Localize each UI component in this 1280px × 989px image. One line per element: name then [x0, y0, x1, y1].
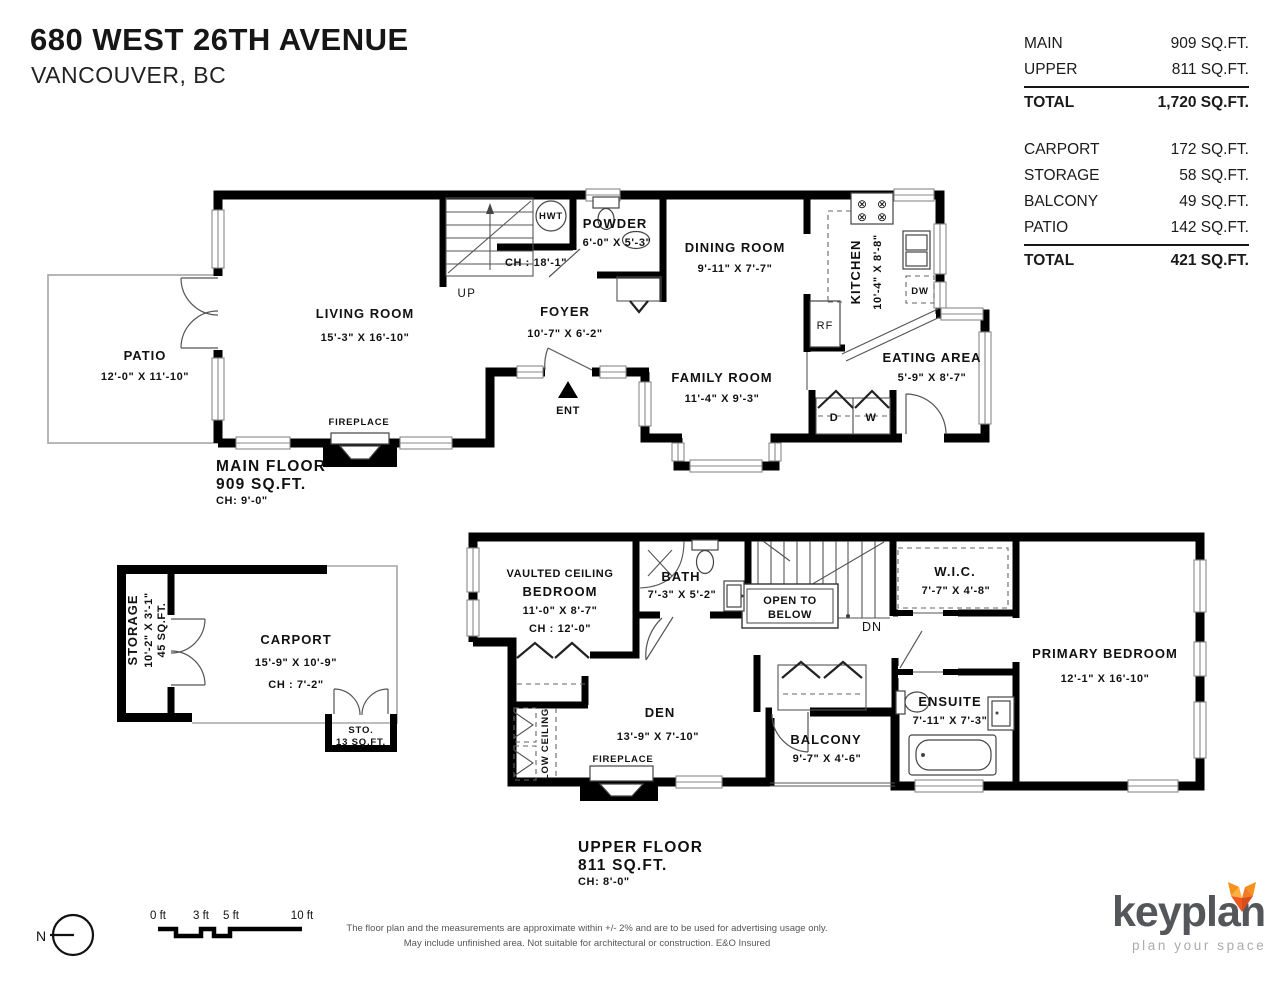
main-floor-plan: HWT ⊗ ⊗ ⊗ ⊗	[48, 189, 991, 507]
wic-pocket-door	[898, 607, 958, 619]
family-dims: 11'-4" X 9'-3"	[685, 393, 760, 405]
den-name: DEN	[645, 705, 675, 720]
main-floor-title: MAIN FLOOR	[216, 458, 326, 475]
disclaimer: The floor plan and the measurements are …	[337, 921, 837, 951]
bath-door	[646, 617, 673, 660]
primary-dims: 12'-1" X 16'-10"	[1061, 673, 1150, 685]
primary-name: PRIMARY BEDROOM	[1032, 646, 1178, 661]
dining-dims: 9'-11" X 7'-7"	[698, 263, 773, 275]
ensuite-tub	[909, 735, 996, 775]
eating-dims: 5'-9" X 8'-7"	[898, 372, 967, 384]
dw-label: DW	[911, 286, 928, 297]
open-to-below: OPEN TO BELOW	[742, 584, 838, 628]
family-name: FAMILY ROOM	[671, 370, 772, 385]
living-name: LIVING ROOM	[316, 306, 414, 321]
eating-area-door	[906, 394, 946, 434]
hall-door	[900, 631, 922, 668]
fox-icon	[1227, 882, 1257, 914]
rf-label: RF	[817, 320, 834, 332]
floorplan-page: 680 WEST 26TH AVENUE VANCOUVER, BC MAIN …	[0, 0, 1280, 989]
kitchen-dishwasher: DW	[906, 276, 934, 303]
low-ceiling-area: LOW CEILING	[514, 708, 556, 780]
stair-ch-label: CH : 18'-1"	[505, 257, 567, 269]
bedroom-name-line1: VAULTED CEILING	[507, 568, 614, 580]
kitchen-name: KITCHEN	[848, 240, 863, 305]
main-fireplace	[323, 433, 397, 467]
floor-plan-canvas: HWT ⊗ ⊗ ⊗ ⊗	[0, 0, 1280, 989]
ensuite-pocket-door	[898, 666, 958, 678]
main-floor-ceiling: CH: 9'-0"	[216, 495, 268, 507]
low-ceiling-label: LOW CEILING	[540, 708, 551, 780]
primary-door-opening	[1010, 620, 1022, 660]
sto-area: 13 SQ.FT.	[336, 737, 386, 748]
carport-name: CARPORT	[260, 632, 331, 647]
bath-vanity	[724, 581, 744, 611]
ensuite-dims: 7'-11" X 7'-3"	[913, 715, 988, 727]
carport-plan: STORAGE 10'-2" X 3'-1" 45 SQ.FT. CARPORT…	[117, 565, 397, 752]
bedroom-closet	[517, 643, 589, 684]
foyer-name: FOYER	[540, 304, 590, 319]
scale-3: 3 ft	[193, 910, 210, 922]
upper-fireplace	[580, 766, 658, 801]
upper-fireplace-label: FIREPLACE	[592, 754, 653, 765]
powder-dims: 6'-0" X 5'-3"	[583, 237, 652, 249]
upper-floor-plan: OPEN TO BELOW DN	[467, 533, 1206, 889]
balcony-dims: 9'-7" X 4'-6"	[793, 753, 862, 765]
up-label: UP	[458, 288, 477, 300]
upper-floor-title: UPPER FLOOR	[578, 839, 703, 856]
washer-label: W	[866, 412, 877, 424]
brand-tagline: plan your space	[1132, 938, 1277, 953]
ent-label: ENT	[556, 405, 580, 417]
hot-water-tank: HWT	[536, 201, 566, 231]
sto-doors	[334, 689, 388, 715]
wic-dims: 7'-7" X 4'-8"	[922, 585, 991, 597]
dining-name: DINING ROOM	[685, 240, 786, 255]
keyplan-logo: keyplan plan your space	[1112, 890, 1277, 953]
svg-text:⊗: ⊗	[877, 197, 887, 211]
disclaimer-line2: May include unfinished area. Not suitabl…	[337, 936, 837, 951]
entry-door-opening	[545, 366, 592, 378]
scale-bar: 0 ft 3 ft 5 ft 10 ft	[150, 910, 314, 936]
upper-floor-area: 811 SQ.FT.	[578, 857, 668, 874]
ensuite-vanity	[988, 697, 1014, 730]
fireplace-label: FIREPLACE	[328, 417, 389, 428]
scale-10: 10 ft	[291, 910, 314, 922]
upper-floor-ceiling: CH: 8'-0"	[578, 876, 630, 888]
bedroom-name-line2: BEDROOM	[523, 584, 598, 599]
bedroom-ceiling: CH : 12'-0"	[529, 623, 591, 635]
storage-doors	[171, 619, 205, 685]
bath-name: BATH	[661, 569, 700, 584]
kitchen-fridge: RF	[810, 301, 840, 347]
scale-5: 5 ft	[223, 910, 240, 922]
entry-arrow-icon	[558, 381, 578, 398]
sto-name: STO.	[348, 725, 373, 736]
bedroom-dims: 11'-0" X 8'-7"	[523, 605, 598, 617]
den-dims: 13'-9" X 7'-10"	[617, 731, 699, 743]
svg-text:⊗: ⊗	[857, 197, 867, 211]
foyer-closet	[617, 277, 661, 312]
balcony-closet	[778, 662, 866, 710]
svg-text:⊗: ⊗	[857, 210, 867, 224]
wic-name: W.I.C.	[934, 564, 975, 579]
kitchen-dims: 10'-4" X 8'-8"	[872, 234, 884, 309]
patio-door-opening	[212, 276, 224, 350]
north-label: N	[36, 928, 46, 944]
kitchen-sink	[903, 231, 930, 269]
storage-dims: 10'-2" X 3'-1"	[143, 592, 155, 667]
hwt-label: HWT	[539, 211, 563, 222]
ensuite-name: ENSUITE	[918, 694, 981, 709]
dn-label: DN	[862, 620, 882, 634]
scale-0: 0 ft	[150, 910, 167, 922]
carport-ceiling: CH : 7'-2"	[268, 679, 323, 691]
storage-name: STORAGE	[125, 594, 140, 665]
dryer-label: D	[830, 412, 839, 424]
patio-dims: 12'-0" X 11'-10"	[101, 371, 189, 383]
kitchen-stove: ⊗ ⊗ ⊗ ⊗	[851, 193, 893, 224]
open-below-line1: OPEN TO	[763, 595, 817, 607]
disclaimer-line1: The floor plan and the measurements are …	[337, 921, 837, 936]
laundry-closet: D W	[816, 391, 890, 434]
svg-text:⊗: ⊗	[877, 210, 887, 224]
main-floor-area: 909 SQ.FT.	[216, 476, 306, 493]
powder-name: POWDER	[583, 216, 648, 231]
north-compass: N	[36, 915, 93, 955]
storage-area: 45 SQ.FT.	[156, 603, 168, 658]
carport-dims: 15'-9" X 10'-9"	[255, 657, 337, 669]
balcony-name: BALCONY	[790, 732, 861, 747]
living-dims: 15'-3" X 16'-10"	[321, 332, 410, 344]
eating-door-opening	[902, 432, 944, 444]
open-below-line2: BELOW	[768, 609, 812, 621]
eating-name: EATING AREA	[882, 350, 981, 365]
patio-name: PATIO	[124, 348, 167, 363]
foyer-dims: 10'-7" X 6'-2"	[527, 328, 602, 340]
balcony-rail	[770, 783, 895, 786]
bath-dims: 7'-3" X 5'-2"	[648, 589, 717, 601]
